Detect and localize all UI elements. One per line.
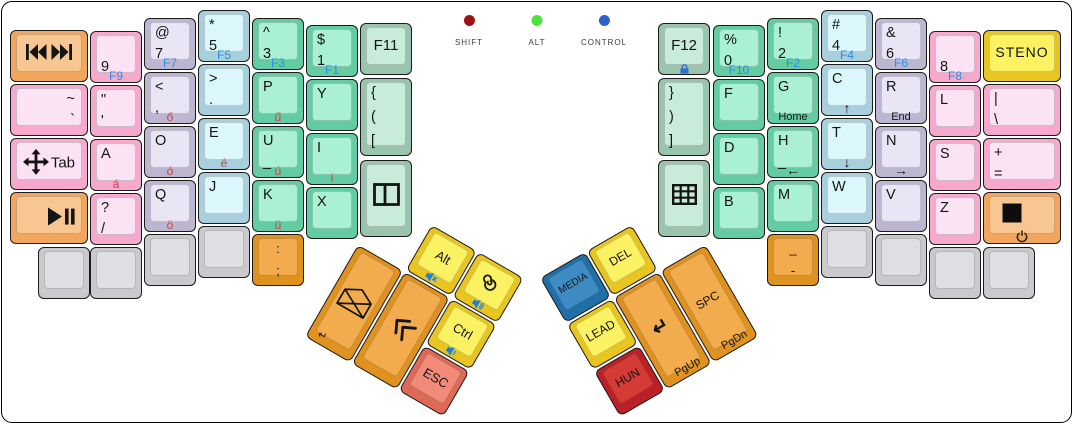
key-legend: ó bbox=[145, 165, 195, 177]
key-legend: # bbox=[832, 18, 840, 33]
key-legend: F5 bbox=[199, 49, 249, 61]
window-split-icon bbox=[361, 161, 411, 228]
key-legend: J bbox=[209, 180, 216, 195]
key-legend: F3 bbox=[253, 57, 303, 69]
play-pause-icon bbox=[48, 208, 75, 226]
key-legend: Home bbox=[768, 112, 818, 123]
key-comma[interactable]: <,ő bbox=[144, 72, 196, 124]
key-legend: { bbox=[371, 86, 376, 101]
key-7[interactable]: @7F7 bbox=[144, 18, 196, 70]
key-brackets-open[interactable]: {([ bbox=[360, 78, 412, 156]
key-legend: ) bbox=[669, 110, 674, 125]
key-legend: V bbox=[886, 188, 896, 203]
key-2[interactable]: !2F2 bbox=[767, 18, 819, 70]
key-legend: ű bbox=[253, 111, 303, 123]
stop-square-icon bbox=[1002, 203, 1022, 223]
key-blank-right-bottom2[interactable] bbox=[983, 247, 1035, 299]
control-indicator-dot bbox=[599, 15, 610, 26]
key-4[interactable]: #4F4 bbox=[821, 10, 873, 62]
indicator-shift: SHIFT bbox=[455, 15, 483, 47]
key-i[interactable]: Ií bbox=[306, 133, 358, 185]
key-legend: Tab bbox=[51, 155, 75, 170]
key-legend: _ bbox=[768, 242, 818, 255]
prev-next-track-icon bbox=[11, 31, 87, 73]
key-pipe[interactable]: |\ bbox=[983, 84, 1061, 136]
key-blank-left-bottom1[interactable] bbox=[38, 247, 90, 299]
key-legend: O bbox=[155, 134, 166, 149]
key-stop[interactable] bbox=[983, 192, 1061, 244]
key-3[interactable]: ^3F3 bbox=[252, 18, 304, 70]
grid-icon bbox=[659, 161, 709, 228]
key-legend: M bbox=[778, 188, 790, 203]
key-legend: $ bbox=[317, 33, 325, 48]
keycap-surface bbox=[989, 196, 1055, 234]
key-p[interactable]: Pű bbox=[252, 72, 304, 124]
key-legend: F6 bbox=[876, 57, 926, 69]
key-legend: & bbox=[886, 26, 896, 41]
key-legend: F4 bbox=[822, 49, 872, 61]
key-legend: ↑ bbox=[822, 101, 872, 115]
keycap-surface bbox=[989, 88, 1055, 126]
key-legend: N bbox=[886, 134, 896, 149]
key-e[interactable]: Eé bbox=[198, 118, 250, 170]
key-blank-right-bottom1[interactable] bbox=[929, 247, 981, 299]
shift-indicator-dot bbox=[463, 15, 474, 26]
key-u[interactable]: U_ú bbox=[252, 126, 304, 178]
key-l[interactable]: L bbox=[929, 85, 981, 137]
key-legend: é bbox=[199, 157, 249, 169]
key-legend: ← bbox=[768, 163, 818, 177]
key-n[interactable]: N→ bbox=[875, 126, 927, 178]
move-icon bbox=[23, 149, 49, 175]
key-legend: → bbox=[876, 163, 926, 177]
keycap-surface bbox=[204, 230, 244, 268]
key-legend: ] bbox=[669, 134, 673, 149]
key-period[interactable]: >. bbox=[198, 64, 250, 116]
key-legend: F9 bbox=[91, 70, 141, 82]
key-b[interactable]: B bbox=[713, 187, 765, 239]
key-legend: > bbox=[209, 72, 217, 87]
key-play-pause[interactable] bbox=[10, 192, 88, 244]
key-legend: + bbox=[994, 146, 1002, 161]
key-8[interactable]: 8F8 bbox=[929, 31, 981, 83]
key-legend: ~ bbox=[67, 92, 75, 107]
key-legend: í bbox=[307, 172, 357, 184]
key-s[interactable]: S bbox=[929, 139, 981, 191]
key-legend: } bbox=[669, 86, 674, 101]
key-w[interactable]: W bbox=[821, 172, 873, 224]
indicator-label: SHIFT bbox=[455, 38, 483, 47]
key-legend: ^ bbox=[263, 26, 270, 41]
key-legend: E bbox=[209, 126, 219, 141]
key-steno[interactable]: STENO bbox=[983, 30, 1061, 82]
key-grid[interactable] bbox=[658, 160, 710, 237]
key-legend: X bbox=[317, 195, 327, 210]
key-legend: F10 bbox=[714, 64, 764, 76]
key-z[interactable]: Z bbox=[929, 193, 981, 245]
key-f[interactable]: F bbox=[713, 79, 765, 131]
key-legend: F8 bbox=[930, 70, 980, 82]
key-legend: L bbox=[940, 93, 948, 108]
key-1[interactable]: $1F1 bbox=[306, 25, 358, 77]
key-legend: K bbox=[263, 188, 273, 203]
key-j[interactable]: J bbox=[198, 172, 250, 224]
key-legend: F12 bbox=[659, 24, 709, 66]
key-legend: U bbox=[263, 134, 273, 149]
key-a[interactable]: Aá bbox=[90, 139, 142, 191]
key-legend: ; bbox=[253, 264, 303, 277]
key-brackets-close[interactable]: })] bbox=[658, 78, 710, 156]
key-legend: B bbox=[724, 195, 734, 210]
key-legend: ő bbox=[145, 111, 195, 123]
key-blank-right-col4[interactable] bbox=[821, 226, 873, 278]
key-h[interactable]: H_← bbox=[767, 126, 819, 178]
key-legend: \ bbox=[994, 113, 998, 128]
key-legend: á bbox=[91, 178, 141, 190]
key-quote[interactable]: "' bbox=[90, 85, 142, 137]
key-legend: | bbox=[994, 92, 998, 107]
key-legend: H bbox=[778, 134, 788, 149]
key-legend: F bbox=[724, 87, 733, 102]
key-legend: : bbox=[253, 242, 303, 255]
key-legend: T bbox=[832, 126, 841, 141]
keycap-surface bbox=[827, 230, 867, 268]
key-m[interactable]: M bbox=[767, 180, 819, 232]
key-legend: Z bbox=[940, 201, 949, 216]
keycap-surface bbox=[44, 251, 84, 289]
indicator-label: CONTROL bbox=[581, 38, 627, 47]
key-legend: STENO bbox=[984, 31, 1060, 73]
key-k[interactable]: Kü bbox=[252, 180, 304, 232]
key-x[interactable]: X bbox=[306, 187, 358, 239]
key-window-split[interactable] bbox=[360, 160, 412, 237]
key-legend: " bbox=[101, 93, 106, 108]
key-legend: * bbox=[209, 18, 215, 33]
key-legend: D bbox=[724, 141, 734, 156]
power-icon bbox=[984, 230, 1060, 243]
key-0[interactable]: %0F10 bbox=[713, 25, 765, 77]
key-legend: ' bbox=[101, 114, 104, 129]
key-5[interactable]: *5F5 bbox=[198, 10, 250, 62]
key-r[interactable]: REnd bbox=[875, 72, 927, 124]
key-legend: ü bbox=[253, 219, 303, 231]
indicator-label: ALT bbox=[528, 38, 545, 47]
keycap-surface bbox=[150, 238, 190, 276]
key-legend: C bbox=[832, 72, 842, 87]
key-f12[interactable]: F12 bbox=[658, 23, 710, 75]
key-prev-next-track[interactable] bbox=[10, 30, 88, 82]
key-legend: S bbox=[940, 147, 950, 162]
key-legend: F2 bbox=[768, 57, 818, 69]
key-legend: R bbox=[886, 80, 896, 95]
key-slash[interactable]: ?/ bbox=[90, 193, 142, 245]
key-colon[interactable]: :; bbox=[252, 234, 304, 286]
key-legend: A bbox=[101, 147, 111, 162]
keycap-surface bbox=[935, 251, 975, 289]
key-blank-left-col3[interactable] bbox=[144, 234, 196, 286]
key-blank-left-col4[interactable] bbox=[198, 226, 250, 278]
key-legend: F7 bbox=[145, 57, 195, 69]
key-tab[interactable]: Tab bbox=[10, 138, 88, 190]
key-legend: ! bbox=[778, 26, 782, 41]
key-legend: ` bbox=[70, 113, 75, 128]
key-tilde[interactable]: ~` bbox=[10, 84, 88, 136]
key-plus[interactable]: += bbox=[983, 138, 1061, 190]
key-legend: ú bbox=[253, 165, 303, 177]
indicator-alt: ALT bbox=[528, 15, 545, 47]
key-y[interactable]: Y bbox=[306, 79, 358, 131]
key-legend: F1 bbox=[307, 64, 357, 76]
lock-icon bbox=[659, 64, 709, 74]
keycap-surface bbox=[881, 238, 921, 276]
key-t[interactable]: T↓ bbox=[821, 118, 873, 170]
key-legend: = bbox=[994, 167, 1002, 182]
key-v[interactable]: V bbox=[875, 180, 927, 232]
key-o[interactable]: Oó bbox=[144, 126, 196, 178]
keycap-surface bbox=[989, 251, 1029, 289]
key-legend: Y bbox=[317, 87, 327, 102]
key-legend: % bbox=[724, 33, 737, 48]
key-blank-right-col5[interactable] bbox=[875, 234, 927, 286]
key-legend: W bbox=[832, 180, 846, 195]
key-d[interactable]: D bbox=[713, 133, 765, 185]
key-legend: . bbox=[209, 93, 213, 108]
key-legend: ö bbox=[145, 219, 195, 231]
key-blank-left-bottom2[interactable] bbox=[90, 247, 142, 299]
key-q[interactable]: Qö bbox=[144, 180, 196, 232]
indicator-control: CONTROL bbox=[581, 15, 627, 47]
key-legend: ? bbox=[101, 201, 109, 216]
key-6[interactable]: &6F6 bbox=[875, 18, 927, 70]
key-legend: [ bbox=[371, 134, 375, 149]
alt-indicator-dot bbox=[531, 15, 542, 26]
key-legend: F11 bbox=[361, 24, 411, 66]
key-legend: - bbox=[768, 264, 818, 277]
key-legend: < bbox=[155, 80, 163, 95]
key-legend: / bbox=[101, 222, 105, 237]
key-underscore[interactable]: _- bbox=[767, 234, 819, 286]
key-f11[interactable]: F11 bbox=[360, 23, 412, 75]
keycap-surface bbox=[96, 251, 136, 289]
key-legend: ( bbox=[371, 110, 376, 125]
key-c[interactable]: C↑ bbox=[821, 64, 873, 116]
key-legend: End bbox=[876, 112, 926, 123]
key-legend: Q bbox=[155, 188, 166, 203]
key-legend: @ bbox=[155, 26, 170, 41]
key-legend: P bbox=[263, 80, 273, 95]
key-legend: G bbox=[778, 80, 789, 95]
keyboard-layout: SHIFTALTCONTROL ~`Tab9F9"'Aá?/@7F7<,őOóQ… bbox=[0, 0, 1073, 424]
key-9[interactable]: 9F9 bbox=[90, 31, 142, 83]
key-legend: ↓ bbox=[822, 155, 872, 169]
key-g[interactable]: GHome bbox=[767, 72, 819, 124]
key-legend: I bbox=[317, 141, 321, 156]
